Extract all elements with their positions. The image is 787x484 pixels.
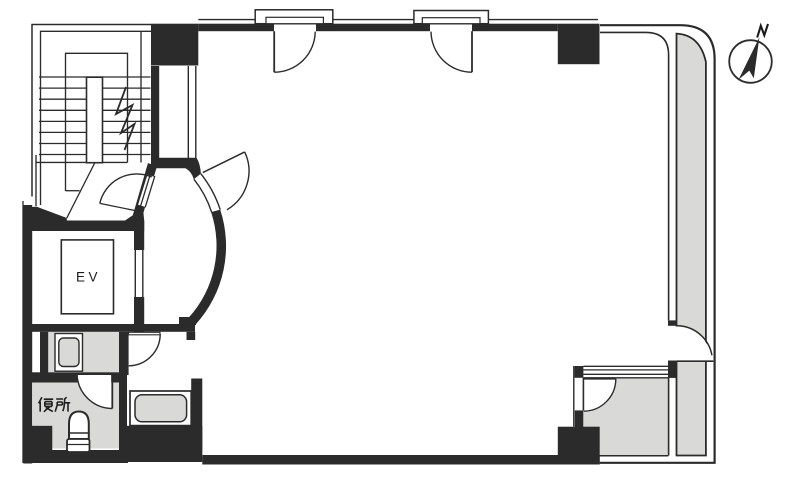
svg-text:EV: EV	[76, 270, 101, 285]
